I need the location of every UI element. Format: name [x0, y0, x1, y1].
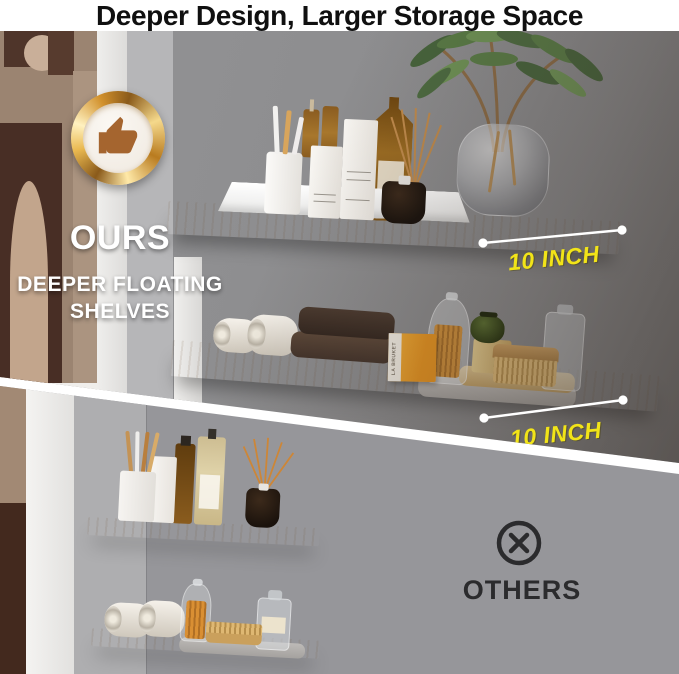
wall-art-frame	[0, 31, 106, 395]
ours-label: OURS	[2, 219, 238, 258]
cosmetic-box	[308, 145, 343, 218]
others-label: OTHERS	[437, 575, 607, 606]
toothbrushes	[271, 106, 313, 158]
glass-vase	[455, 122, 551, 218]
reed-diffuser-bottle	[245, 488, 281, 529]
ours-subtitle: DEEPER FLOATING SHELVES	[2, 271, 238, 325]
soap-box-label: LA BRUKET	[391, 335, 398, 375]
header-bar: Deeper Design, Larger Storage Space	[0, 0, 679, 31]
badge-inner-circle	[83, 103, 153, 173]
diffuser-reeds	[383, 105, 451, 192]
rolled-towel	[138, 600, 186, 639]
ours-subtitle-line1: DEEPER FLOATING	[2, 271, 238, 298]
utensil-cup	[118, 471, 156, 523]
soap-box: LA BRUKET	[388, 333, 437, 382]
page-title: Deeper Design, Larger Storage Space	[96, 0, 583, 32]
reed-diffuser-bottle	[381, 181, 427, 225]
cosmetic-box-tall	[340, 119, 379, 220]
gold-badge	[71, 91, 165, 185]
bristle-brush	[205, 621, 262, 646]
wooden-brushes	[124, 431, 160, 477]
wall-white-frame	[26, 353, 74, 674]
tall-bottle	[194, 436, 226, 525]
others-bottom-shelf-group	[90, 531, 337, 674]
product-infographic: Deeper Design, Larger Storage Space	[0, 0, 679, 674]
abstract-artwork	[0, 31, 97, 383]
ours-text-block: OURS DEEPER FLOATING SHELVES	[2, 219, 238, 325]
toothbrush-cup	[264, 151, 303, 215]
ours-subtitle-line2: SHELVES	[2, 298, 238, 325]
circle-x-icon	[494, 518, 544, 568]
bristle-brush	[491, 344, 560, 389]
thumbs-up-icon	[95, 115, 141, 161]
wall-art-edge	[0, 353, 26, 674]
art-shape	[48, 31, 74, 75]
